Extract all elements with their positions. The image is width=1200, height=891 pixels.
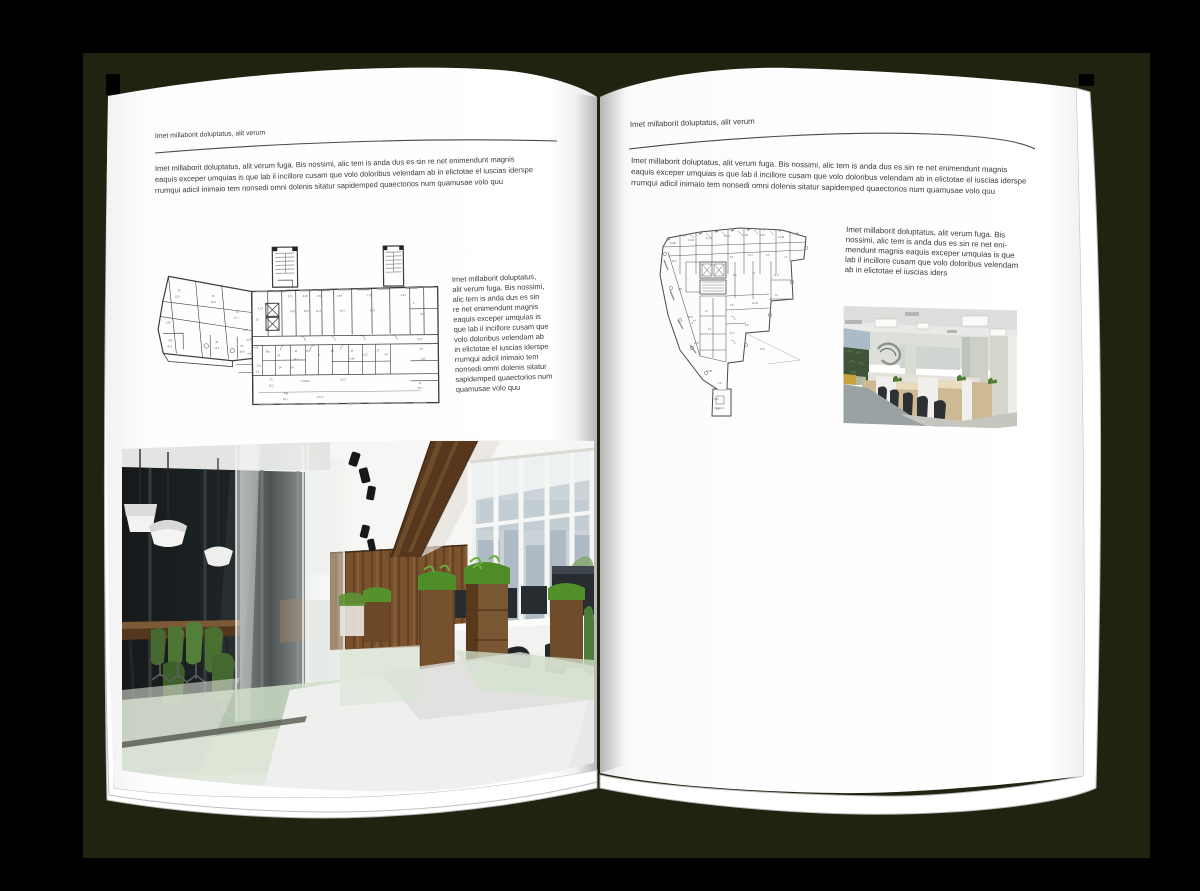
svg-text:27a: 27a bbox=[256, 363, 261, 367]
svg-text:5.42: 5.42 bbox=[760, 348, 765, 351]
svg-text:5.43: 5.43 bbox=[420, 357, 426, 361]
svg-text:30.2: 30.2 bbox=[211, 300, 217, 304]
svg-text:5.78: 5.78 bbox=[367, 293, 373, 297]
svg-text:4.8: 4.8 bbox=[330, 349, 334, 353]
svg-text:13.64: 13.64 bbox=[724, 235, 731, 238]
svg-text:32.2: 32.2 bbox=[420, 312, 426, 316]
svg-text:12.1: 12.1 bbox=[748, 254, 753, 257]
svg-text:11.2: 11.2 bbox=[730, 332, 735, 335]
svg-text:10.6: 10.6 bbox=[239, 350, 245, 354]
svg-text:12.1: 12.1 bbox=[269, 383, 275, 387]
svg-text:3.80: 3.80 bbox=[337, 294, 343, 298]
svg-text:3.11: 3.11 bbox=[243, 328, 248, 332]
svg-text:16.5: 16.5 bbox=[340, 309, 346, 313]
svg-text:1.12: 1.12 bbox=[362, 352, 368, 356]
svg-text:10.6: 10.6 bbox=[304, 309, 310, 313]
svg-text:13.46: 13.46 bbox=[778, 236, 785, 239]
svg-text:206: 206 bbox=[168, 338, 173, 342]
svg-text:11.8: 11.8 bbox=[774, 274, 779, 277]
svg-text:4.3: 4.3 bbox=[256, 369, 260, 373]
svg-text:2.80: 2.80 bbox=[303, 294, 309, 298]
svg-text:4.84: 4.84 bbox=[349, 356, 355, 360]
svg-text:29a: 29a bbox=[265, 349, 270, 353]
svg-text:14.5: 14.5 bbox=[293, 357, 299, 361]
svg-text:11.8: 11.8 bbox=[316, 309, 321, 313]
svg-text:23a: 23a bbox=[284, 391, 289, 395]
svg-text:2-й эт: 2-й эт bbox=[317, 395, 325, 399]
svg-text:37.7: 37.7 bbox=[234, 316, 240, 320]
svg-text:4.8: 4.8 bbox=[384, 352, 388, 356]
svg-text:30.7: 30.7 bbox=[418, 386, 424, 390]
svg-text:12.6: 12.6 bbox=[175, 294, 181, 298]
svg-text:36.2: 36.2 bbox=[672, 260, 677, 263]
svg-text:40.2: 40.2 bbox=[167, 344, 173, 348]
svg-text:11.42: 11.42 bbox=[706, 237, 712, 240]
svg-text:126: 126 bbox=[166, 320, 171, 324]
svg-text:28.6: 28.6 bbox=[370, 308, 376, 312]
svg-text:0.54: 0.54 bbox=[417, 337, 423, 341]
svg-text:34.7: 34.7 bbox=[283, 397, 289, 401]
svg-text:8.2: 8.2 bbox=[306, 349, 310, 353]
svg-text:12.80: 12.80 bbox=[670, 242, 677, 245]
svg-text:4.88: 4.88 bbox=[760, 234, 765, 237]
svg-text:56.8: 56.8 bbox=[688, 316, 693, 319]
svg-text:1.13: 1.13 bbox=[374, 348, 380, 352]
svg-text:22.8: 22.8 bbox=[694, 342, 699, 345]
svg-text:1.45: 1.45 bbox=[401, 293, 407, 297]
svg-text:2.42: 2.42 bbox=[714, 398, 719, 401]
svg-text:14.36: 14.36 bbox=[688, 239, 695, 242]
svg-text:2.75: 2.75 bbox=[288, 294, 294, 298]
svg-text:6.8: 6.8 bbox=[419, 347, 423, 351]
svg-text:13.8: 13.8 bbox=[290, 309, 296, 313]
svg-text:4.8: 4.8 bbox=[247, 352, 251, 356]
svg-text:5-42.80: 5-42.80 bbox=[301, 379, 310, 383]
svg-text:2.30: 2.30 bbox=[317, 294, 323, 298]
svg-text:248: 248 bbox=[678, 288, 683, 291]
svg-text:18.46: 18.46 bbox=[752, 302, 759, 305]
svg-text:12.80: 12.80 bbox=[742, 234, 749, 237]
svg-text:95.3: 95.3 bbox=[341, 378, 347, 382]
svg-text:4.03: 4.03 bbox=[253, 345, 259, 349]
svg-text:2.72: 2.72 bbox=[258, 306, 264, 310]
svg-text:4.03: 4.03 bbox=[246, 338, 252, 342]
svg-text:12.6: 12.6 bbox=[214, 346, 220, 350]
